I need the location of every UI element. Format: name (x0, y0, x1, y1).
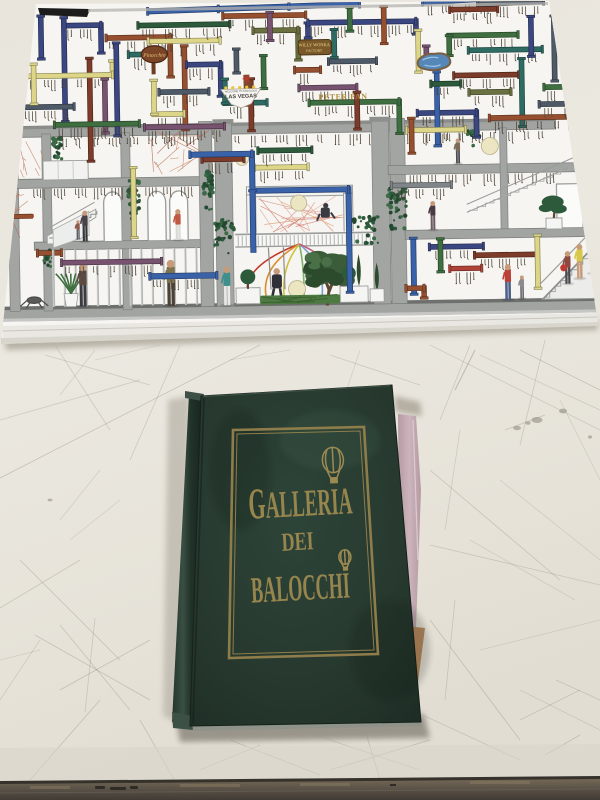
svg-text:LAS VEGAS: LAS VEGAS (225, 93, 257, 100)
svg-text:BALOCCHI: BALOCCHI (250, 565, 351, 611)
svg-text:GALLERIA: GALLERIA (247, 474, 354, 528)
svg-text:WILLY WONKA: WILLY WONKA (298, 42, 330, 48)
svg-text:DEI: DEI (281, 526, 314, 557)
svg-text:FACTORY: FACTORY (306, 49, 323, 53)
svg-text:PETER PAN: PETER PAN (318, 92, 367, 102)
svg-text:Pinocchio: Pinocchio (142, 53, 166, 59)
